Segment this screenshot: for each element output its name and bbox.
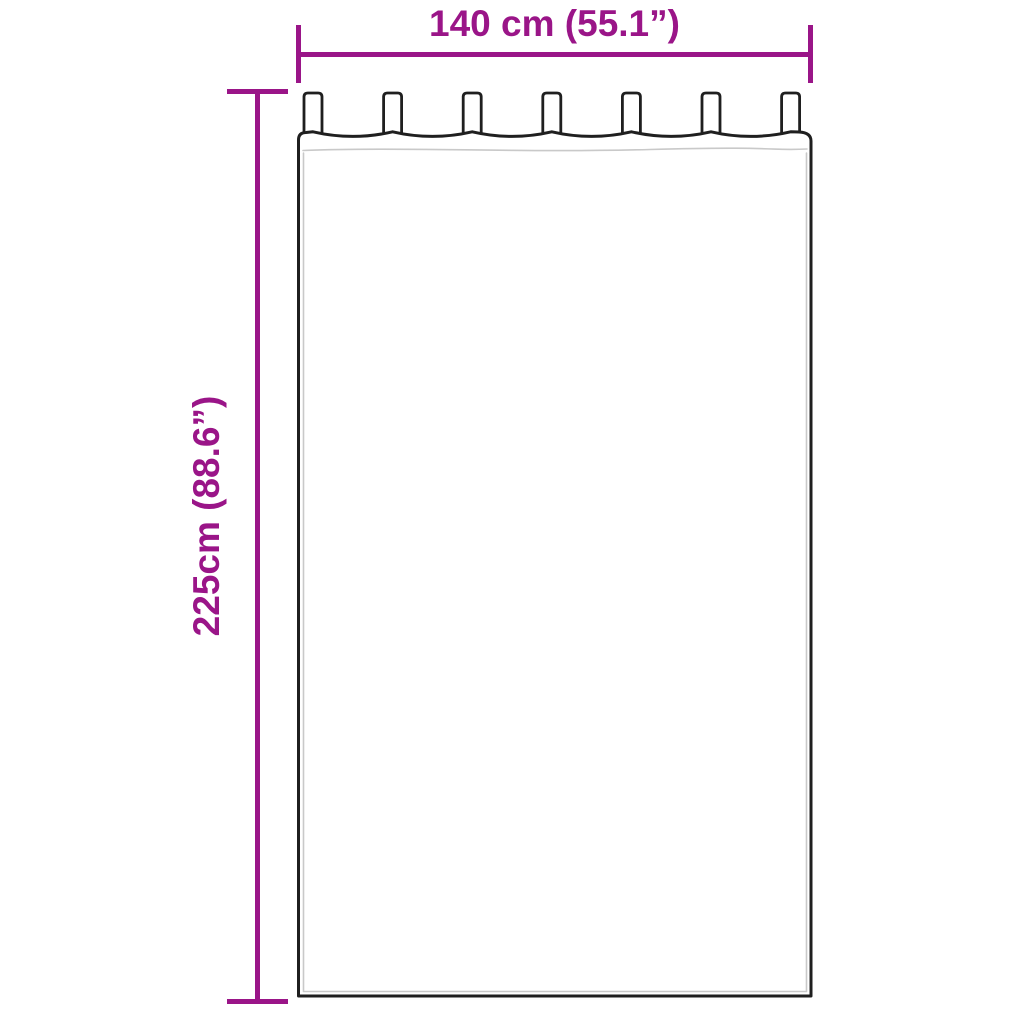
curtain-drawing — [0, 0, 1024, 1024]
curtain-body-outline — [299, 132, 812, 996]
width-dimension-label: 140 cm (55.1”) — [298, 3, 811, 46]
height-dimension-line — [255, 91, 260, 1002]
dimension-diagram: 140 cm (55.1”) 225cm (88.6”) — [0, 0, 1024, 1024]
height-dimension-bottom-cap — [227, 999, 288, 1004]
height-dimension-label: 225cm (88.6”) — [186, 396, 228, 637]
height-dimension-top-cap — [227, 89, 288, 94]
width-dimension-line — [298, 52, 811, 57]
